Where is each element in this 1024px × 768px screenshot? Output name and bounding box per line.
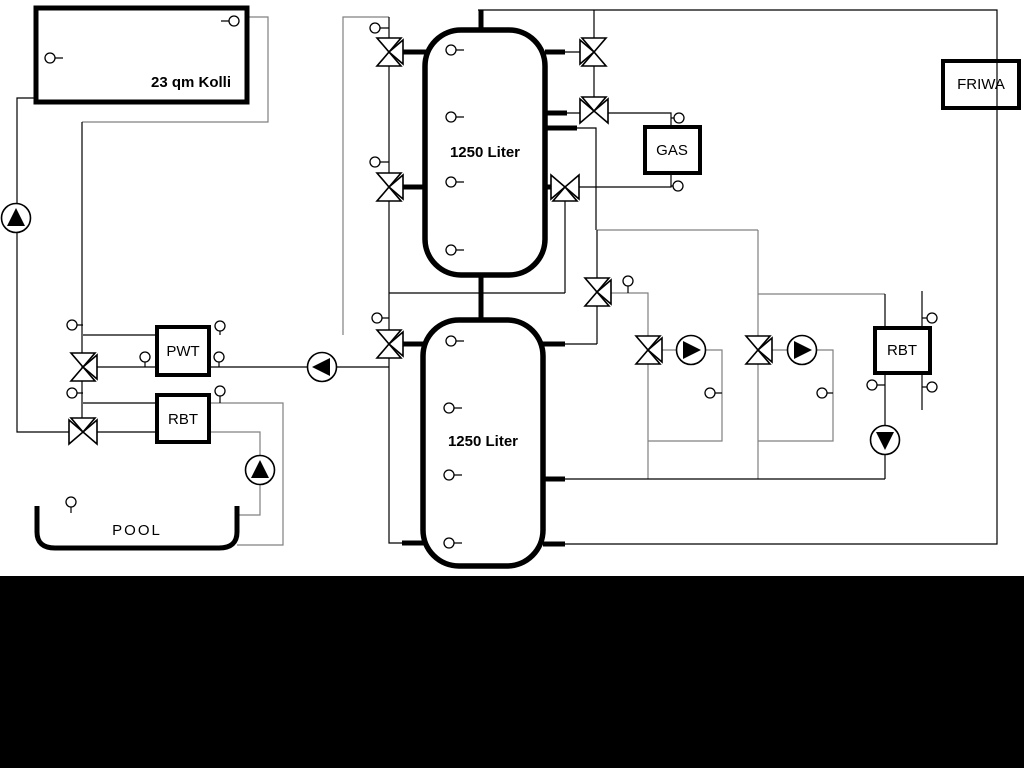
sensor-icon	[867, 380, 877, 390]
sensor-icon	[229, 16, 239, 26]
gas-boiler-label: GAS	[656, 142, 688, 159]
sensor-icon	[446, 245, 456, 255]
sensor-icon	[446, 112, 456, 122]
sensor-icon	[140, 352, 150, 362]
buffer-tank-bottom-label: 1250 Liter	[448, 433, 518, 450]
solar-pump-icon	[2, 204, 31, 233]
sensor-icon	[673, 181, 683, 191]
sensor-icon	[446, 177, 456, 187]
schematic-canvas: 23 qm Kolli 1250 Liter 1250 Liter GAS PW…	[0, 0, 1024, 768]
sensor-icon	[67, 320, 77, 330]
sensor-icon	[817, 388, 827, 398]
sensor-icon	[372, 313, 382, 323]
sensor-icon	[623, 276, 633, 286]
rbt-pool-label: RBT	[168, 411, 198, 428]
sensor-icon	[67, 388, 77, 398]
bottom-black-bar	[0, 576, 1024, 768]
sensor-icon	[927, 313, 937, 323]
rbt-pump-icon	[871, 426, 900, 455]
sensor-icon	[927, 382, 937, 392]
friwa-label: FRIWA	[957, 76, 1005, 93]
sensor-icon	[705, 388, 715, 398]
sensor-icon	[446, 336, 456, 346]
screenshot-root: 23 qm Kolli 1250 Liter 1250 Liter GAS PW…	[0, 0, 1024, 768]
pool-pump-icon	[246, 456, 275, 485]
sensor-icon	[444, 538, 454, 548]
sensor-icon	[66, 497, 76, 507]
heating-circuit-2-pump-icon	[788, 336, 817, 365]
sensor-icon	[214, 352, 224, 362]
sensor-icon	[444, 403, 454, 413]
heating-circuit-1-pump-icon	[677, 336, 706, 365]
collector-label: 23 qm Kolli	[151, 74, 231, 91]
buffer-tank-top-label: 1250 Liter	[450, 144, 520, 161]
sensor-icon	[215, 386, 225, 396]
sensor-icon	[370, 157, 380, 167]
sensor-icon	[446, 45, 456, 55]
pool-label: POOL	[112, 522, 162, 539]
sensor-icon	[45, 53, 55, 63]
sensor-icon	[674, 113, 684, 123]
pwt-pump-icon	[308, 353, 337, 382]
rbt-right-label: RBT	[887, 342, 917, 359]
sensor-icon	[370, 23, 380, 33]
sensor-icon	[444, 470, 454, 480]
sensor-icon	[215, 321, 225, 331]
pwt-label: PWT	[166, 343, 199, 360]
